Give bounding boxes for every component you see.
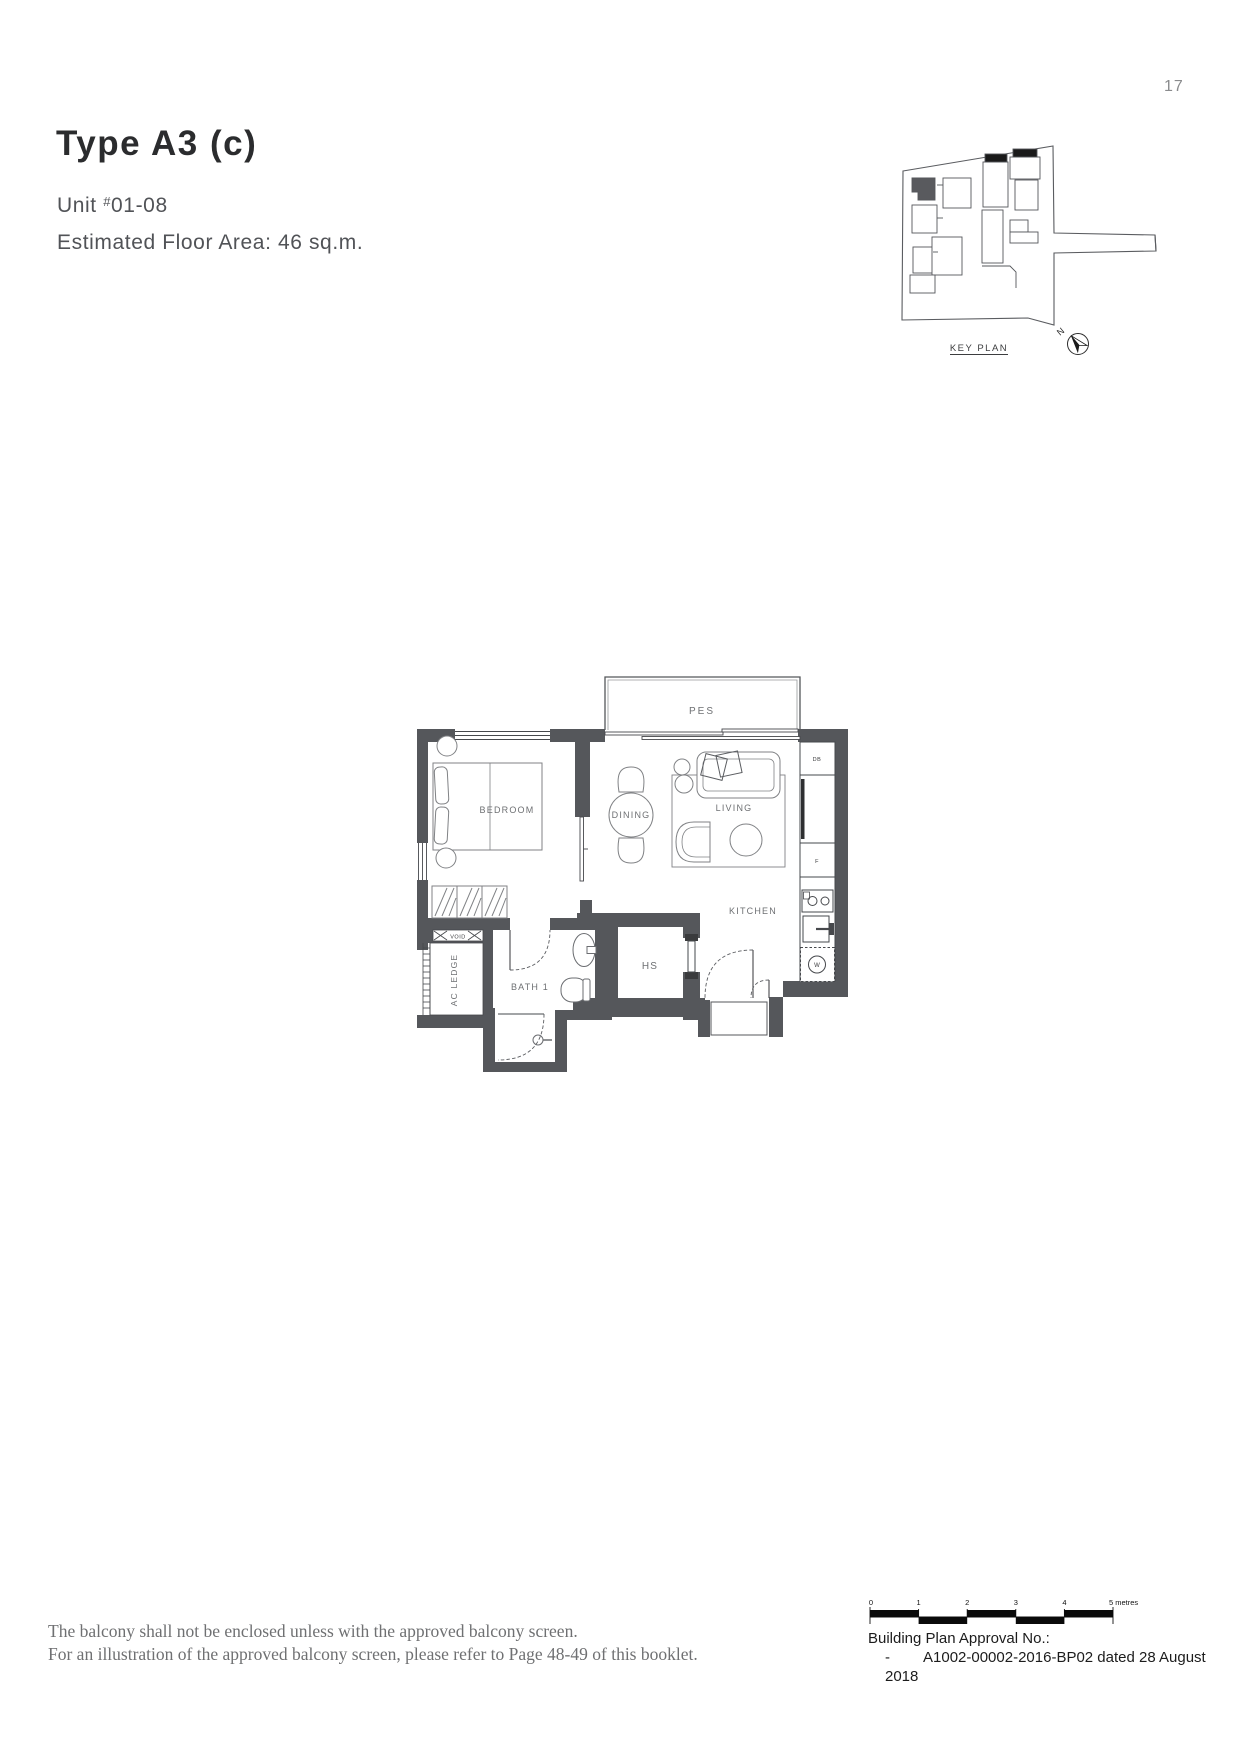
tall-cabinet bbox=[800, 775, 835, 843]
kitchen-label: KITCHEN bbox=[729, 906, 777, 916]
highlighted-building bbox=[912, 178, 935, 200]
ac-ledge-label: AC LEDGE bbox=[449, 954, 459, 1007]
dining-chair bbox=[618, 838, 644, 863]
hob bbox=[802, 890, 833, 912]
hs-door bbox=[685, 934, 698, 979]
bedroom-sliding-door bbox=[580, 817, 584, 881]
page-number: 17 bbox=[1164, 78, 1184, 96]
side-table bbox=[674, 759, 690, 775]
key-plan-diagram: KEY PLAN N bbox=[890, 140, 1170, 365]
hs-label: HS bbox=[642, 961, 658, 972]
armchair bbox=[676, 822, 710, 862]
svg-text:3: 3 bbox=[1014, 1598, 1018, 1607]
approval-dash: - bbox=[885, 1648, 923, 1667]
side-table bbox=[675, 775, 693, 793]
scale-end-label: 5 metres bbox=[1109, 1598, 1138, 1607]
db-label: DB bbox=[813, 757, 822, 763]
living-label: LIVING bbox=[716, 803, 753, 813]
unit-number-line: Unit #01-08 bbox=[57, 194, 168, 218]
dining-label: DINING bbox=[612, 810, 651, 820]
door-swing-arcs bbox=[498, 930, 769, 1060]
key-plan-label-group: KEY PLAN bbox=[950, 343, 1008, 355]
dining-chair bbox=[618, 767, 644, 792]
washer-label: W bbox=[814, 963, 820, 969]
svg-text:4: 4 bbox=[1062, 1598, 1066, 1607]
pes-terrace-fence bbox=[605, 677, 800, 730]
fridge-label: F bbox=[815, 859, 819, 865]
unit-number: 01-08 bbox=[111, 194, 168, 217]
floor-area-line: Estimated Floor Area: 46 sq.m. bbox=[57, 231, 363, 255]
bath-door-arc bbox=[510, 930, 550, 970]
bedside-table bbox=[437, 736, 457, 756]
balcony-note: The balcony shall not be enclosed unless… bbox=[48, 1620, 698, 1666]
svg-text:2: 2 bbox=[965, 1598, 969, 1607]
bedroom-label: BEDROOM bbox=[480, 805, 535, 815]
void-label: VOID bbox=[450, 935, 465, 941]
scale-bar-segments bbox=[870, 1610, 1113, 1624]
floor-plan-diagram: PES BEDROOM DINING LIVING KITCHEN HS BAT… bbox=[400, 650, 880, 1090]
svg-text:1: 1 bbox=[917, 1598, 921, 1607]
furniture bbox=[432, 736, 785, 918]
entrance-door-arc bbox=[705, 950, 753, 998]
kitchen-sink bbox=[803, 916, 834, 942]
page-title: Type A3 (c) bbox=[56, 124, 257, 164]
bedside-table bbox=[436, 848, 456, 868]
balcony-note-line2: For an illustration of the approved balc… bbox=[48, 1643, 698, 1666]
brochure-page: 17 Type A3 (c) Unit #01-08 Estimated Flo… bbox=[0, 0, 1240, 1754]
approval-heading: Building Plan Approval No.: bbox=[868, 1629, 1240, 1648]
scale-bar-labels: 0 1 2 3 4 5 metres bbox=[869, 1598, 1139, 1607]
building-plan-approval: Building Plan Approval No.: -A1002-00002… bbox=[868, 1629, 1240, 1686]
balcony-note-line1: The balcony shall not be enclosed unless… bbox=[48, 1620, 698, 1643]
north-label: N bbox=[1055, 326, 1066, 338]
pes-sliding-door bbox=[722, 729, 798, 732]
entry-porch bbox=[711, 1002, 767, 1035]
pes-sliding-door bbox=[605, 732, 723, 735]
coffee-table bbox=[730, 824, 762, 856]
shower-drain bbox=[533, 1035, 552, 1045]
bath1-label: BATH 1 bbox=[511, 982, 549, 992]
approval-value: A1002-00002-2016-BP02 dated 28 August 20… bbox=[885, 1649, 1206, 1685]
key-plan-label: KEY PLAN bbox=[950, 343, 1008, 354]
key-plan-buildings bbox=[910, 149, 1040, 293]
unit-hash: # bbox=[103, 194, 111, 209]
approval-row: -A1002-00002-2016-BP02 dated 28 August 2… bbox=[868, 1648, 1240, 1686]
pes-sliding-door bbox=[642, 737, 800, 740]
wardrobe bbox=[432, 886, 507, 918]
entrance-door-arc2 bbox=[751, 980, 769, 998]
shower-door-arc bbox=[498, 1014, 544, 1060]
svg-text:0: 0 bbox=[869, 1598, 873, 1607]
unit-prefix: Unit bbox=[57, 194, 103, 217]
north-arrow-icon: N bbox=[1055, 326, 1089, 355]
pes-label: PES bbox=[689, 706, 715, 717]
